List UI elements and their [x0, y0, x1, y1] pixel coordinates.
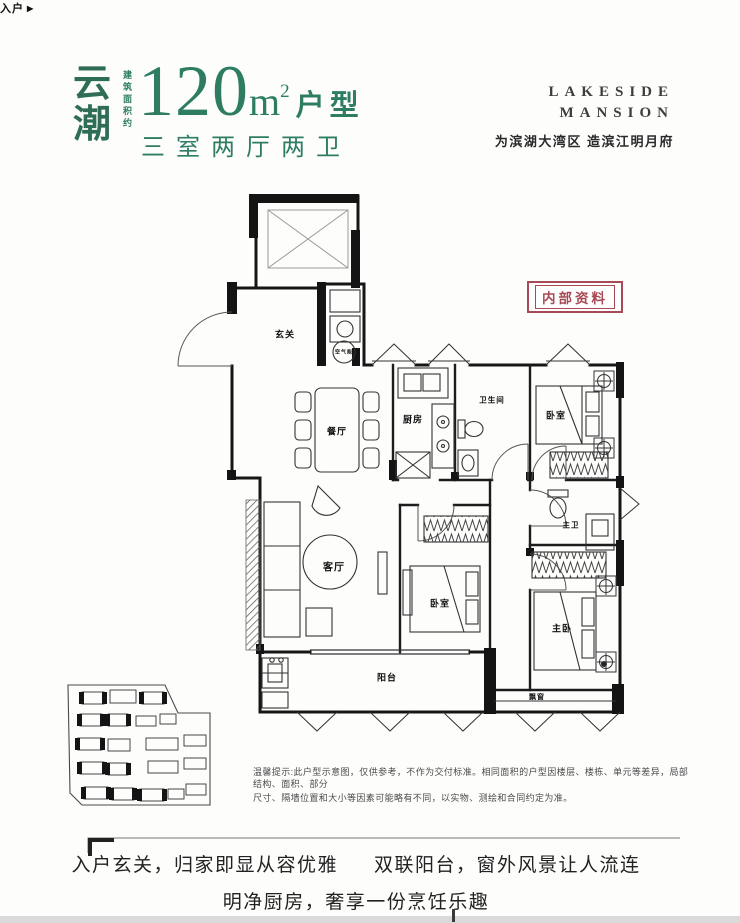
site-plan-sketch — [68, 685, 210, 805]
slogan-entry: 入户玄关，归家即显从容优雅 — [71, 855, 338, 876]
slogan-balcony: 双联阳台，窗外风景让人流连 — [374, 855, 641, 876]
disclaimer-line2: 尺寸、隔墙位置和大小等因素可能略有不同，以实物、测绘和合同约定为准。 — [253, 792, 695, 804]
slogan-kitchen: 明净厨房，奢享一份烹饪乐趣 — [0, 887, 712, 914]
slogan-block: 入户玄关，归家即显从容优雅双联阳台，窗外风景让人流连 明净厨房，奢享一份烹饪乐趣 — [0, 850, 712, 914]
door-arcs — [178, 312, 566, 590]
disclaimer-line1: 温馨提示:此户型示意图，仅供参考，不作为交付标准。相同面积的户型因楼层、楼栋、单… — [253, 766, 695, 790]
scan-edge-tick — [452, 909, 455, 922]
furniture — [262, 290, 616, 708]
outer-walls — [232, 284, 620, 712]
stamp-text: 内部资料 — [535, 285, 615, 309]
internal-material-stamp: 内部资料 — [527, 281, 623, 313]
scan-edge-strip — [0, 916, 740, 923]
